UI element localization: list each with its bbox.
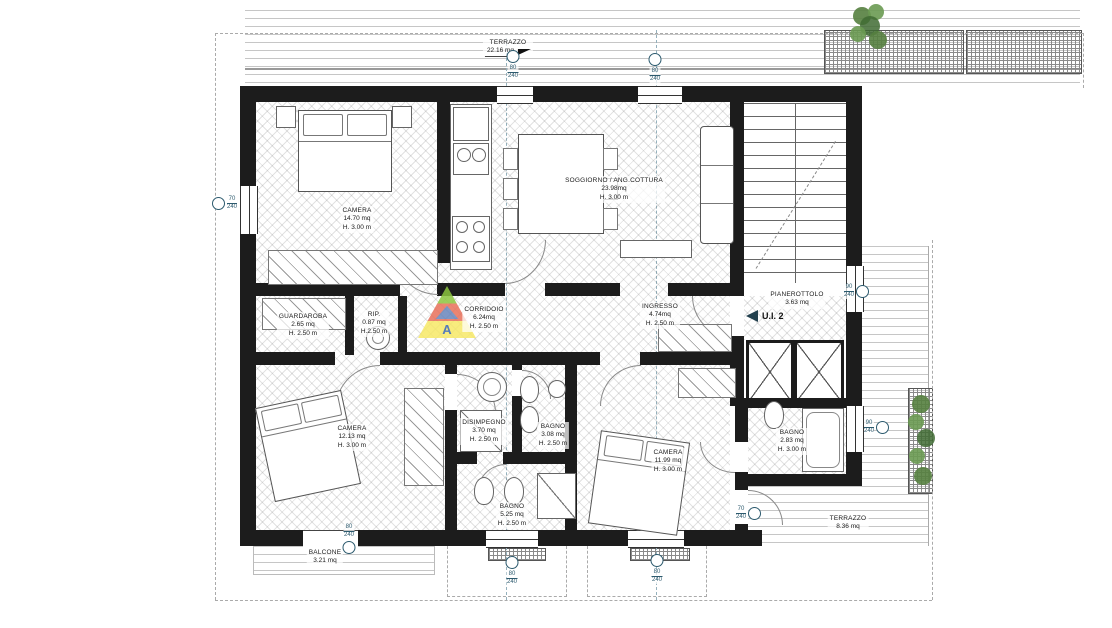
wall-camera3-top [640,352,735,365]
room-area: 0.87 mq [362,319,386,327]
room-label-camera-1: CAMERA 14.70 mq H. 3.00 m [340,206,373,233]
room-height: H. 3.00 m [600,194,628,202]
wall-guardaroba [345,296,354,355]
wardrobe [268,250,438,285]
toilet [764,401,784,429]
room-label-corridoio: CORRIDOIO 6.24mq H. 2.50 m [462,305,505,332]
toilet [474,477,494,505]
dim-width: 80 [650,68,660,76]
room-height: H. 3.00 m [778,446,806,454]
wall-bath-right-bottom [748,474,862,486]
room-name: DISIMPEGNO [462,419,506,427]
dim-height: 240 [864,428,874,435]
dim-width: 80 [507,571,517,579]
room-height: H. 2.50 m [646,320,674,328]
room-area: 2.83 mq [780,437,804,445]
room-label-bagno-2: BAGNO 2.83 mq H. 3.00 m [776,428,808,455]
room-area: 11.99 mq [655,457,682,465]
staircase [744,103,846,283]
dim-width: 80 [344,524,354,532]
room-height: H.2.50 m [361,328,387,336]
dim-width: 80 [508,65,518,73]
wardrobe [404,388,444,486]
room-label-rip: RIP. 0.87 mq H.2.50 m [359,310,389,337]
room-name: TERRAZZO [490,39,527,47]
dimension-marker: 80240 [651,554,664,584]
planter-top-1 [824,30,964,74]
room-label-camera-3: CAMERA 11.99 mq H. 3.00 m [651,448,684,475]
room-area: 5.25 mq [500,511,524,519]
boundary-line [215,33,216,600]
window [486,530,538,548]
room-area: 14.70 mq [343,215,370,223]
elevator-shaft [794,340,844,404]
door-gap [735,442,748,472]
wall-left [240,86,256,546]
dimension-marker: 80240 [506,556,519,586]
room-area: 3.70 mq [472,427,496,435]
room-name: RIP. [368,311,381,319]
toilet [520,376,539,403]
dim-height: 240 [650,76,660,83]
marker-circle-icon [212,197,225,210]
marker-circle-icon [507,50,520,63]
fridge [453,107,489,141]
watermark-letter: A [442,322,451,337]
nightstand [276,106,296,128]
wall-camera3-top [577,352,600,365]
room-name: BAGNO [541,423,565,431]
wall-corridor-bottom [380,352,577,365]
room-label-terrazzo-bottom: TERRAZZO 8.36 mq [828,514,869,533]
room-name: CAMERA [342,207,371,215]
room-name: SOGGIORNO / ANG.COTTURA [565,177,663,185]
wall-rip [398,296,407,355]
marker-circle-icon [876,421,889,434]
window [497,86,533,104]
dimension-marker: 70240 [736,506,761,521]
marker-circle-icon [748,507,761,520]
wall-top [240,86,862,102]
chair [503,148,518,170]
room-label-bagno-1: BAGNO 3.08 mq H. 2.50 m [537,422,569,449]
room-area: 2.65 mq [291,321,315,329]
room-height: H. 2.50 m [470,436,498,444]
stove [452,216,490,262]
nightstand [392,106,412,128]
window [240,186,258,234]
washing-machine [477,372,507,402]
room-height: H. 3.00 m [654,466,682,474]
wall-mid-h [668,283,730,296]
room-area: 6.24mq [473,314,495,322]
bed [588,430,690,536]
window [638,86,682,104]
bed [298,110,392,192]
elevator-shaft [746,340,794,404]
room-label-ingresso: INGRESSO 4.74mq H. 2.50 m [640,302,680,329]
plant-icon [846,2,892,56]
room-label-soggiorno: SOGGIORNO / ANG.COTTURA 23.98mq H. 3.00 … [563,176,665,203]
marker-circle-icon [649,53,662,66]
planter-top-2 [966,30,1082,74]
room-height: H. 3.00 m [338,442,366,450]
room-name: CAMERA [653,449,682,457]
dim-height: 240 [344,532,354,539]
wall-bath-right-top [744,398,846,408]
room-area: 3.08 mq [541,431,565,439]
entry-arrow-icon [746,310,758,322]
boundary-line [215,600,932,601]
flag-icon [518,49,531,55]
dim-height: 240 [227,204,237,211]
dimension-marker: 90240 [844,284,869,299]
room-area: 12.13 mq [338,433,365,441]
room-height: H. 2.50 m [289,330,317,338]
dim-height: 240 [508,73,518,80]
shower [537,473,576,519]
room-label-balcone: BALCONE 3.21 mq [307,548,343,567]
room-name: PIANEROTTOLO [770,291,823,299]
room-name: CAMERA [337,425,366,433]
room-height: H. 2.50 m [539,440,567,448]
room-label-camera-2: CAMERA 12.13 mq H. 3.00 m [335,424,368,451]
door-gap [445,374,457,410]
wall-bagno-bottom [453,452,477,464]
dim-width: 70 [227,196,237,204]
room-height: H. 2.50 m [470,323,498,331]
kitchen-sink [453,143,489,175]
room-height: H. 3.00 m [343,224,371,232]
room-area: 4.74mq [649,311,671,319]
room-label-guardaroba: GUARDAROBA 2.65 mq H. 2.50 m [277,312,329,339]
dim-height: 240 [844,292,854,299]
room-area: 3.21 mq [313,557,337,565]
room-name: CORRIDOIO [464,306,503,314]
wardrobe [678,368,736,398]
chair [603,208,618,230]
wall-corridor-bottom [256,352,335,365]
room-area: 23.98mq [601,185,626,193]
boundary-line [1083,33,1084,88]
sofa [700,126,734,244]
wall-bagno-bottom [503,452,577,464]
dim-width: 90 [864,420,874,428]
marker-circle-icon [651,554,664,567]
marker-circle-icon [856,285,869,298]
railing-bay [587,546,707,597]
room-label-disimpegno: DISIMPEGNO 3.70 mq H. 2.50 m [460,418,508,445]
dim-width: 70 [736,506,746,514]
room-name: INGRESSO [642,303,678,311]
room-name: GUARDAROBA [279,313,327,321]
dim-height: 240 [507,579,517,586]
window [846,406,864,452]
marker-circle-icon [506,556,519,569]
dimension-marker: 80240 [507,50,520,80]
room-height: H. 2.50 m [498,520,526,528]
room-name: BALCONE [309,549,341,557]
dimension-marker: 80240 [649,53,662,83]
dim-width: 90 [844,284,854,292]
chair [503,178,518,200]
boundary-line [215,33,1083,34]
sink [548,380,566,398]
room-name: TERRAZZO [830,515,867,523]
door-gap-entrance [730,296,744,336]
room-label-bagno-3: BAGNO 5.25 mq H. 2.50 m [496,502,528,529]
wall-camera3-right [735,405,748,546]
bathtub [802,408,844,472]
dimension-marker: 70240 [212,196,237,211]
unit-entry-marker: U.I. 2 [746,310,784,322]
plant-icon [904,392,938,492]
floor-plan: A TERRAZZO 22.16 mq CAMERA 14.70 mq H. 3… [0,0,1112,628]
dimension-marker: 90240 [864,420,889,435]
bidet [504,477,524,505]
dim-height: 240 [736,514,746,521]
room-label-pianerottolo: PIANEROTTOLO 3.63 mq [768,290,825,309]
dim-height: 240 [652,577,662,584]
chair [603,148,618,170]
wall-mid-h [545,283,620,296]
unit-label: U.I. 2 [762,311,784,321]
room-name: BAGNO [780,429,804,437]
room-name: BAGNO [500,503,524,511]
room-area: 8.36 mq [836,523,860,531]
marker-circle-icon [343,541,356,554]
dimension-marker: 80240 [343,524,356,554]
room-area: 3.63 mq [785,299,809,307]
wall-kitchen [437,102,450,263]
dim-width: 80 [652,569,662,577]
tv-bench [620,240,692,258]
chair [503,208,518,230]
